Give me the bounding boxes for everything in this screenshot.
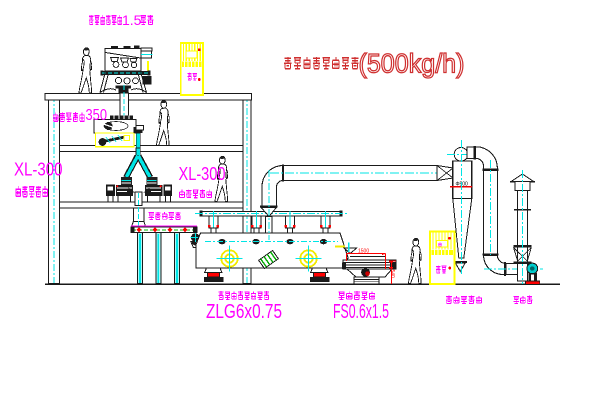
svg-text:1500: 1500 [358,249,369,255]
svg-text:1.5: 1.5 [122,12,142,28]
svg-text:540: 540 [389,270,395,279]
svg-text:ZLG6x0.75: ZLG6x0.75 [206,301,282,323]
svg-text:FS0.6x1.5: FS0.6x1.5 [333,301,389,323]
svg-text:350: 350 [86,107,108,124]
svg-text:(500kg/h): (500kg/h) [359,49,465,79]
svg-text:XL-300: XL-300 [14,160,63,180]
svg-text:XL-300: XL-300 [179,164,226,184]
